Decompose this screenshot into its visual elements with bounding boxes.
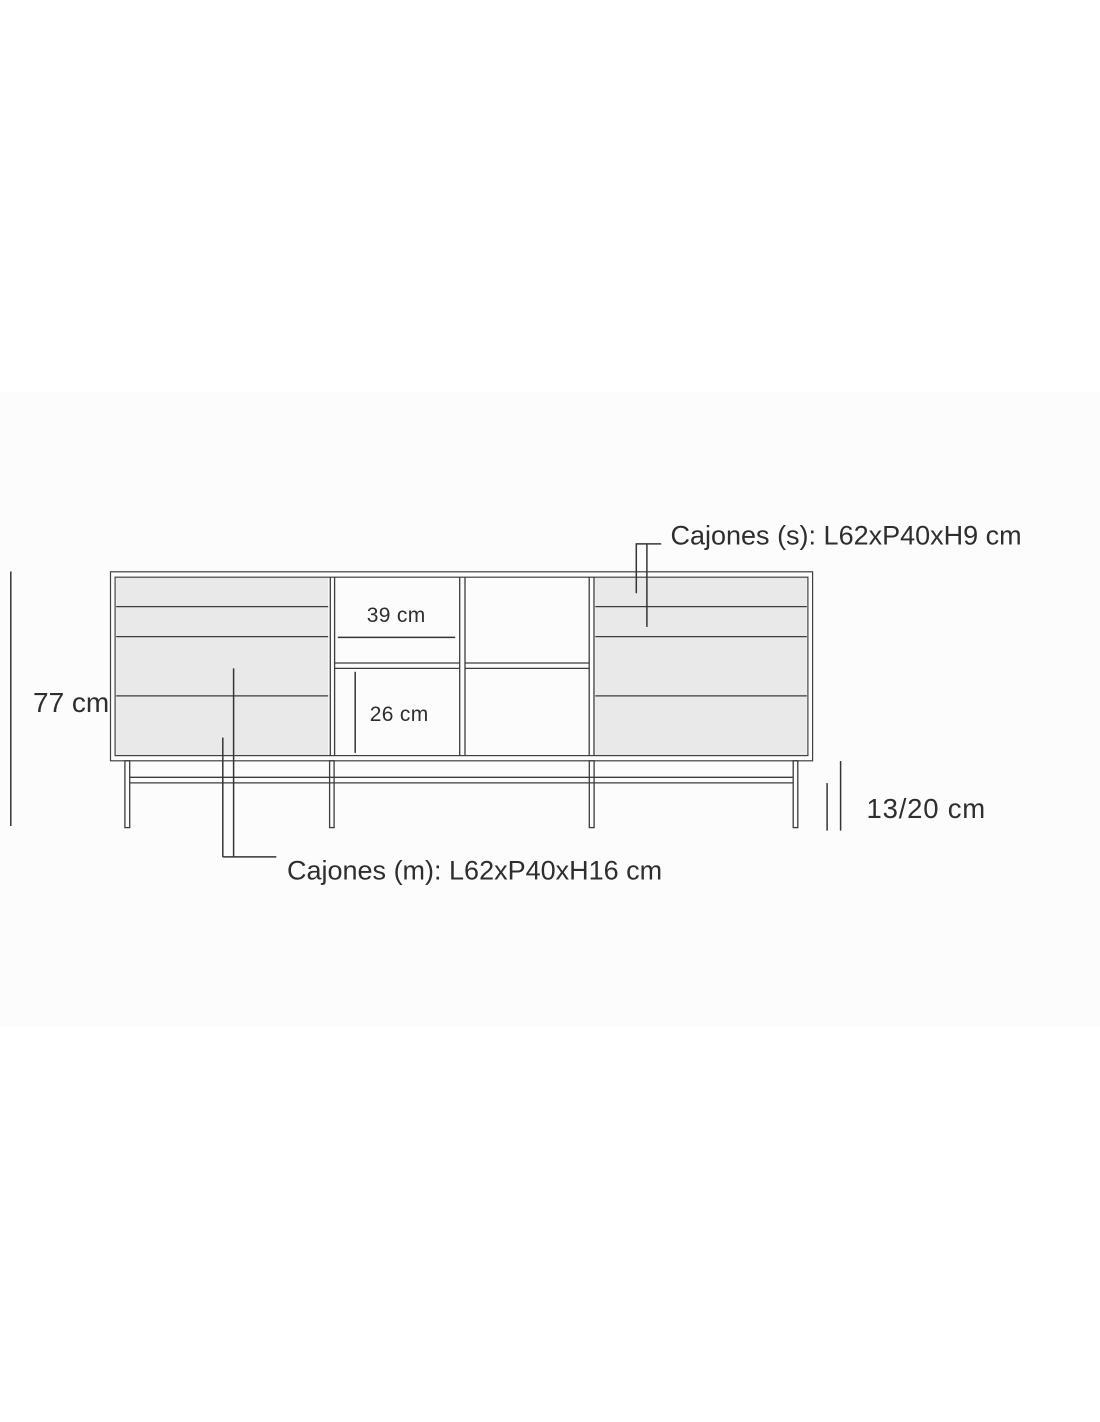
svg-text:Cajones (s): L62xP40xH9 cm: Cajones (s): L62xP40xH9 cm — [671, 521, 1022, 551]
svg-text:Cajones (m): L62xP40xH16 cm: Cajones (m): L62xP40xH16 cm — [287, 856, 662, 886]
svg-text:39 cm: 39 cm — [367, 604, 426, 627]
svg-text:13/20 cm: 13/20 cm — [867, 793, 987, 824]
svg-text:26 cm: 26 cm — [370, 703, 429, 726]
svg-text:77 cm: 77 cm — [33, 687, 109, 718]
